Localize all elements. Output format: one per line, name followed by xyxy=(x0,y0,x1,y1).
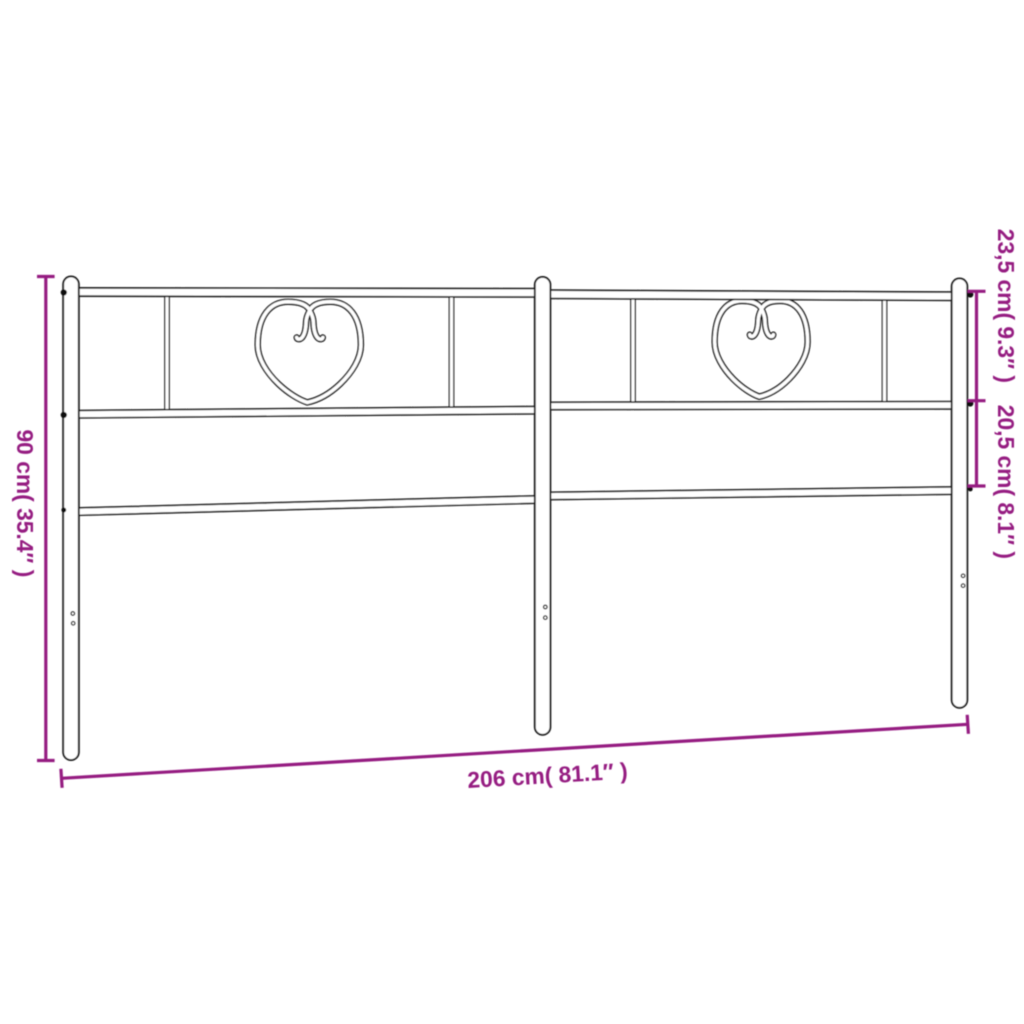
svg-text:20,5 cm( 8.1″ ): 20,5 cm( 8.1″ ) xyxy=(993,405,1019,559)
svg-text:23,5 cm( 9.3″ ): 23,5 cm( 9.3″ ) xyxy=(993,229,1019,383)
svg-text:90 cm( 35.4″ ): 90 cm( 35.4″ ) xyxy=(12,430,38,578)
